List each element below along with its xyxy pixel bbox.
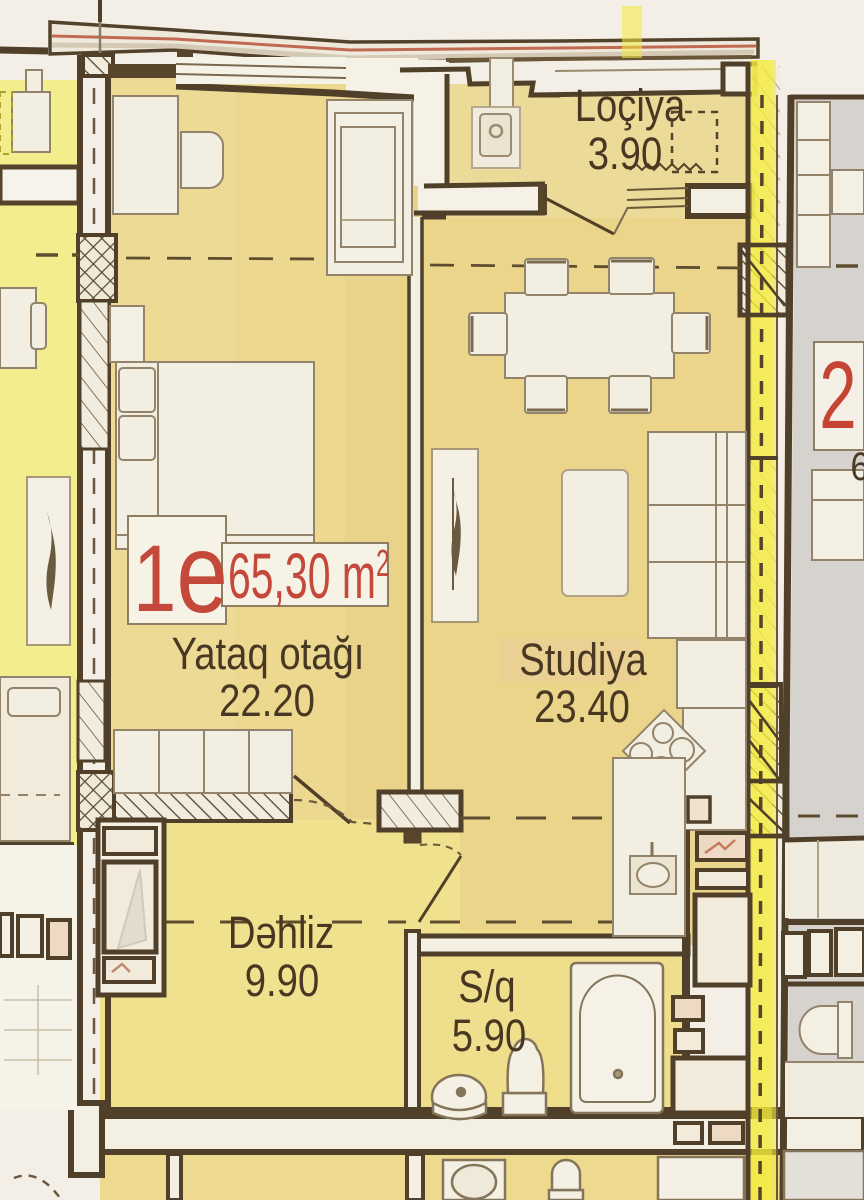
svg-text:S/q: S/q — [458, 961, 515, 1012]
svg-text:9.90: 9.90 — [245, 955, 319, 1006]
svg-text:1e: 1e — [133, 509, 228, 636]
svg-text:2: 2 — [819, 341, 856, 449]
svg-text:3.90: 3.90 — [588, 128, 662, 179]
svg-text:22.20: 22.20 — [219, 675, 315, 726]
svg-text:Dəhliz: Dəhliz — [228, 907, 334, 958]
svg-text:5.90: 5.90 — [452, 1010, 526, 1061]
svg-text:6: 6 — [851, 443, 864, 488]
svg-text:Studiya: Studiya — [519, 634, 647, 685]
svg-text:23.40: 23.40 — [534, 681, 630, 732]
svg-text:Loçiya: Loçiya — [575, 80, 686, 131]
svg-text:65,30 m2: 65,30 m2 — [228, 541, 390, 612]
